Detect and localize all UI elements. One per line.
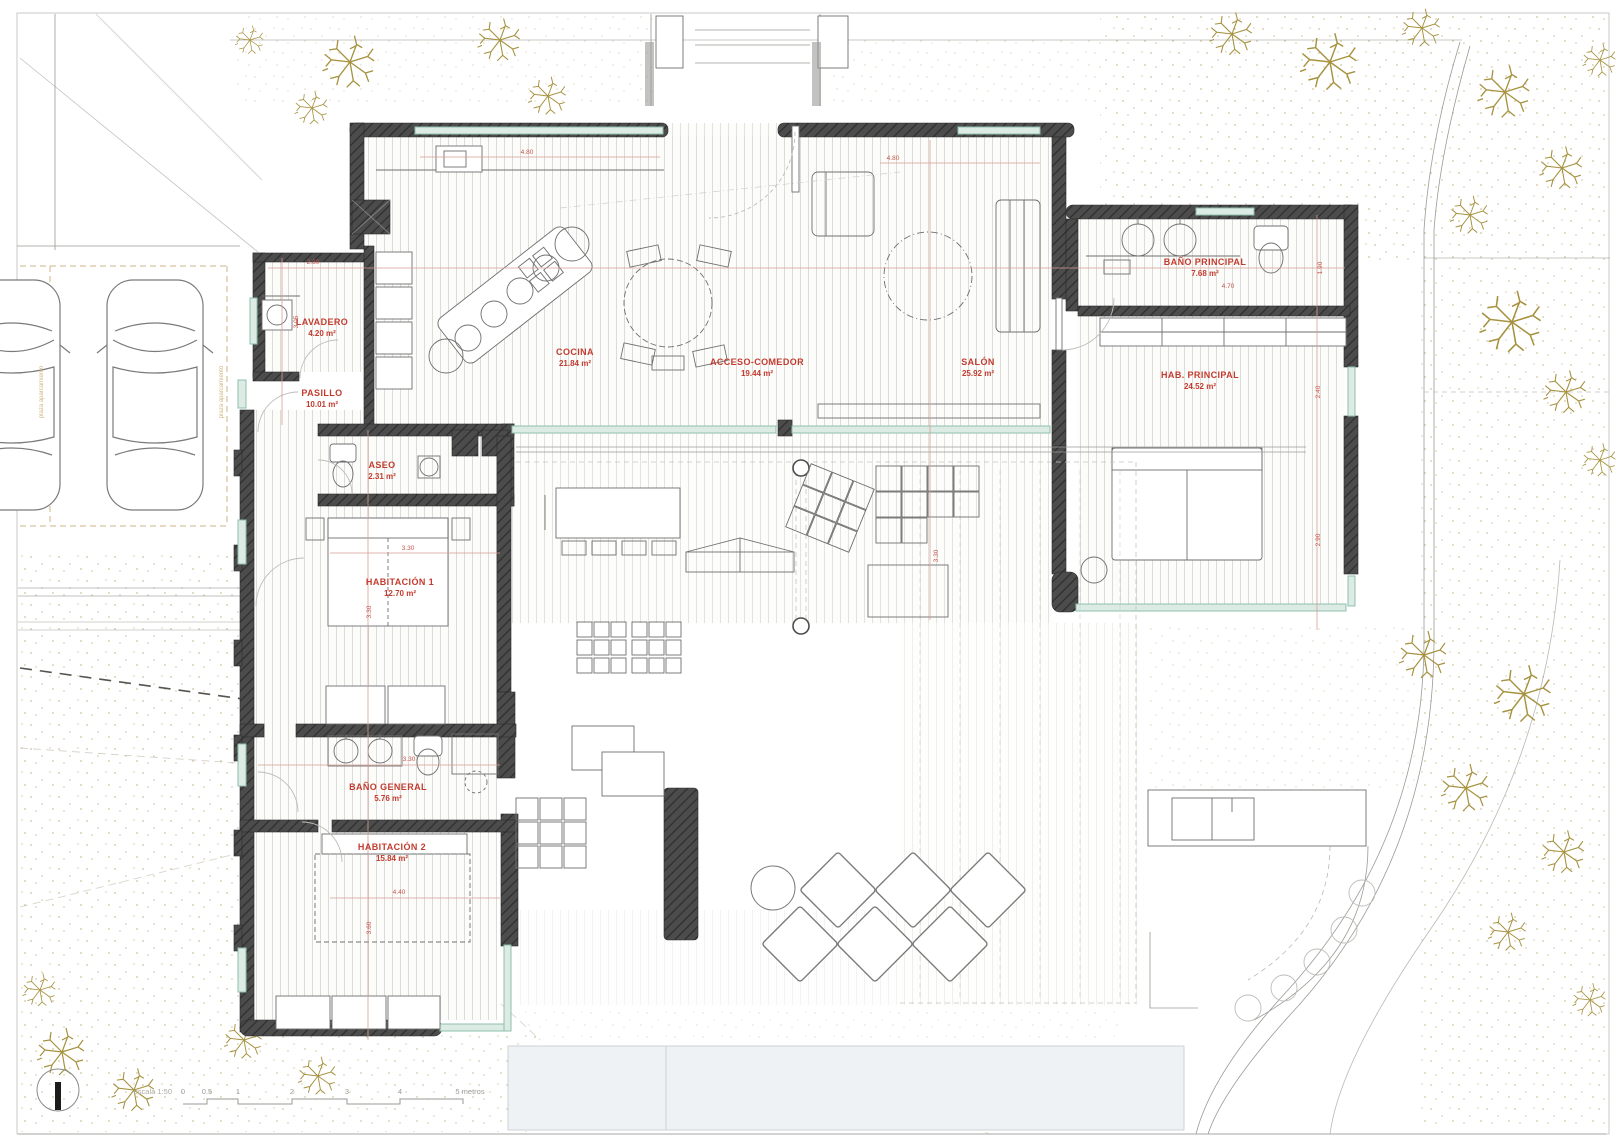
- room-label-pasillo: PASILLO: [301, 388, 342, 398]
- room-label-bano-principal: BAÑO PRINCIPAL: [1164, 257, 1247, 267]
- bath-window: [1196, 208, 1254, 215]
- small-grid-seat: [516, 798, 586, 868]
- room-label-habitacion1: HABITACIÓN 1: [366, 576, 434, 587]
- pergola-post: [793, 460, 809, 476]
- svg-text:4.80: 4.80: [521, 149, 534, 156]
- svg-text:4.70: 4.70: [1222, 283, 1235, 290]
- room-label-comedor: ACCESO-COMEDOR: [710, 357, 804, 367]
- master-south-glass: [1076, 604, 1346, 611]
- svg-text:21.84 m²: 21.84 m²: [559, 359, 591, 368]
- bedroom1-fixtures: [306, 518, 470, 724]
- svg-text:25.92 m²: 25.92 m²: [962, 369, 994, 378]
- lounger: [602, 752, 664, 796]
- planter: [656, 16, 683, 68]
- svg-text:2: 2: [290, 1087, 294, 1096]
- parking-area: plaza aparcamiento plaza aparcamiento: [0, 266, 227, 526]
- svg-text:3.30: 3.30: [402, 545, 415, 552]
- car-1: [0, 280, 70, 510]
- outdoor-table: [556, 488, 680, 538]
- svg-text:5 metros: 5 metros: [455, 1087, 484, 1096]
- svg-text:10.01 m²: 10.01 m²: [306, 400, 338, 409]
- svg-text:3: 3: [345, 1087, 349, 1096]
- parking-label: plaza aparcamiento: [39, 365, 45, 418]
- svg-text:3.30: 3.30: [403, 756, 416, 763]
- svg-text:15.84 m²: 15.84 m²: [376, 854, 408, 863]
- parking-label: plaza aparcamiento: [219, 365, 225, 418]
- svg-text:4: 4: [398, 1087, 402, 1096]
- svg-text:2.90: 2.90: [1315, 533, 1322, 546]
- entry-door-leaf: [792, 126, 799, 192]
- scale-label: escala 1:50: [134, 1087, 172, 1096]
- svg-text:3.30: 3.30: [366, 605, 373, 618]
- room-label-bano-general: BAÑO GENERAL: [349, 782, 427, 792]
- entry-steps: [695, 30, 810, 63]
- kitchen-window: [415, 127, 663, 134]
- wardrobe: [326, 686, 385, 724]
- svg-text:12.70 m²: 12.70 m²: [384, 589, 416, 598]
- sliding-door-1: [512, 426, 776, 433]
- svg-text:4.40: 4.40: [393, 889, 406, 896]
- toilet: [1254, 226, 1288, 250]
- svg-text:1.90: 1.90: [1317, 261, 1324, 274]
- svg-text:3.60: 3.60: [366, 921, 373, 934]
- sliding-door-2: [792, 426, 1050, 433]
- svg-text:3.30: 3.30: [933, 549, 940, 562]
- svg-text:19.44 m²: 19.44 m²: [741, 369, 773, 378]
- floor-plan-canvas: plaza aparcamiento plaza aparcamiento: [0, 0, 1624, 1148]
- salon-window: [958, 127, 1040, 134]
- outdoor-kitchen: [1148, 790, 1375, 1021]
- pool: [508, 1046, 1184, 1130]
- svg-text:4.80: 4.80: [887, 155, 900, 162]
- room-label-lavadero: LAVADERO: [296, 317, 348, 327]
- planter: [818, 16, 848, 68]
- room-label-cocina: COCINA: [556, 347, 594, 357]
- wardrobe: [388, 686, 445, 724]
- floor-plan-page: plaza aparcamiento plaza aparcamiento: [0, 0, 1624, 1148]
- entry-walkway: [645, 14, 848, 106]
- room-label-habitacion2: HABITACIÓN 2: [358, 841, 426, 852]
- svg-text:4.20 m²: 4.20 m²: [308, 329, 336, 338]
- car-2: [97, 280, 213, 510]
- svg-text:3.05: 3.05: [293, 315, 300, 328]
- svg-text:7.68 m²: 7.68 m²: [1191, 269, 1219, 278]
- svg-text:0.5: 0.5: [202, 1087, 212, 1096]
- chair-grid: [577, 622, 681, 673]
- svg-text:0: 0: [181, 1087, 185, 1096]
- room-label-hab-principal: HAB. PRINCIPAL: [1161, 370, 1239, 380]
- garden-wall: [664, 788, 698, 940]
- svg-text:2.40: 2.40: [1315, 385, 1322, 398]
- pergola-post: [793, 618, 809, 634]
- svg-text:24.52 m²: 24.52 m²: [1184, 382, 1216, 391]
- svg-text:1: 1: [236, 1087, 240, 1096]
- svg-text:2.31 m²: 2.31 m²: [368, 472, 396, 481]
- room-label-aseo: ASEO: [368, 460, 395, 470]
- svg-text:5.76 m²: 5.76 m²: [374, 794, 402, 803]
- room-label-salon: SALÓN: [961, 356, 995, 367]
- svg-text:2.30: 2.30: [307, 259, 320, 266]
